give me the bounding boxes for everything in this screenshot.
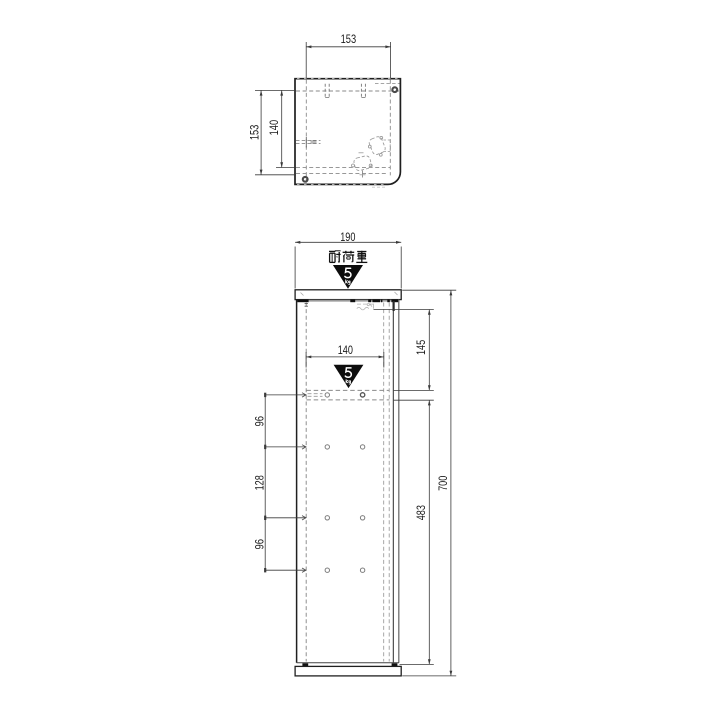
svg-text:190: 190 — [340, 230, 355, 244]
svg-text:483: 483 — [414, 505, 428, 520]
svg-text:128: 128 — [253, 475, 267, 490]
svg-text:145: 145 — [414, 340, 428, 355]
svg-text:96: 96 — [253, 539, 267, 550]
svg-text:153: 153 — [247, 124, 261, 140]
svg-text:700: 700 — [436, 475, 450, 490]
svg-text:153: 153 — [341, 32, 357, 46]
svg-text:140: 140 — [267, 120, 281, 136]
svg-text:96: 96 — [253, 416, 267, 427]
svg-text:140: 140 — [338, 343, 353, 357]
